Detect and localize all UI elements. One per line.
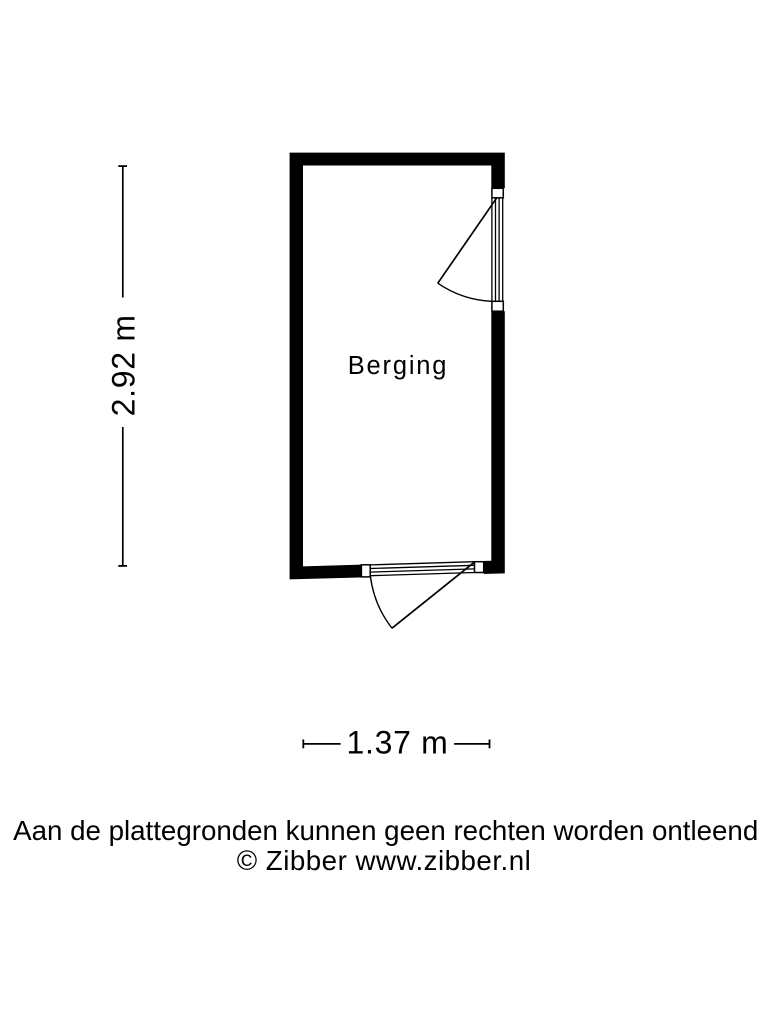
svg-text:Aan de plattegronden kunnen ge: Aan de plattegronden kunnen geen rechten… <box>13 815 758 846</box>
svg-text:Berging: Berging <box>348 352 449 380</box>
svg-text:2.92 m: 2.92 m <box>106 314 142 416</box>
svg-text:© Zibber www.zibber.nl: © Zibber www.zibber.nl <box>237 845 532 876</box>
svg-text:1.37 m: 1.37 m <box>346 725 448 761</box>
